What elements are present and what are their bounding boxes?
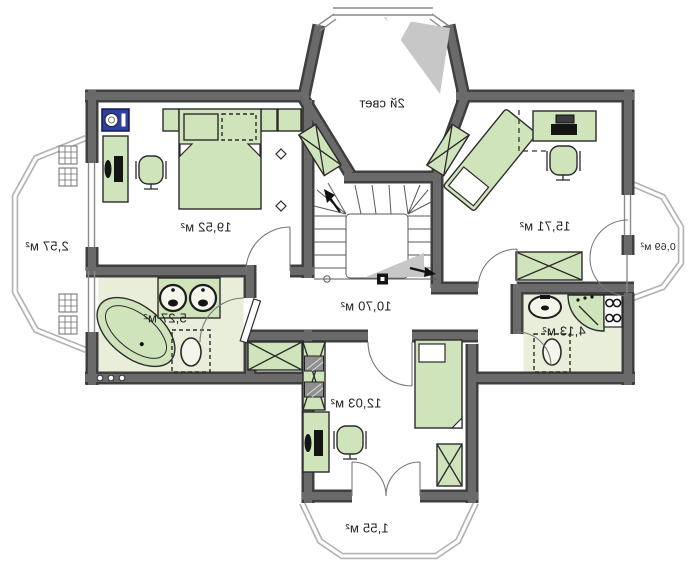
- room-area-label-bottom-room: 12,03 м²: [330, 396, 381, 411]
- planter-box-icon: [59, 294, 77, 312]
- pillow-icon: [419, 344, 445, 362]
- bottom-room-furniture: [303, 340, 462, 486]
- room-area-label-bathroom-right: 4,13 м²: [542, 324, 586, 339]
- office-chair-icon: [136, 156, 166, 189]
- planter-box-icon: [59, 316, 77, 334]
- cabinet-column-icon: [303, 342, 325, 410]
- room-area-label-bedroom-right: 15,71 м²: [519, 219, 570, 234]
- planter-box-icon: [59, 168, 77, 186]
- office-chair-icon: [334, 426, 366, 459]
- room-area-label-bedroom-left: 19,52 м²: [180, 220, 231, 235]
- floor-plan-graphic: [0, 0, 700, 575]
- room-area-label-bathroom-left: 5,27 м²: [143, 311, 187, 326]
- washing-machine-icon: [102, 109, 129, 131]
- cabinet-icon: [278, 109, 301, 131]
- monitor-icon: [114, 156, 123, 182]
- wall-marker: [276, 149, 286, 159]
- pillow-icon: [222, 114, 256, 140]
- wardrobe-icon: [248, 342, 302, 370]
- nightstand-icon: [261, 109, 277, 131]
- bedroom-left-furniture: [102, 109, 301, 211]
- staircase: [314, 183, 437, 285]
- double-door-balcony: [352, 462, 420, 496]
- door-bedroom-right: [478, 249, 517, 288]
- room-area-label-balcony-left: 2,57 м²: [25, 239, 69, 254]
- single-bed-icon: [415, 340, 462, 428]
- monitor-icon: [314, 430, 323, 456]
- wall-marker: [276, 201, 286, 211]
- room-area-label-balcony-right: 0,69 м²: [640, 241, 675, 253]
- floor-plan-canvas: 2й свет 19,52 м² 15,71 м² 10,70 м² 5,27 …: [0, 0, 700, 575]
- nightstand-icon: [163, 109, 179, 131]
- door-bedroom-left: [246, 227, 290, 271]
- room-label-second-light: 2й свет: [359, 96, 405, 111]
- room-area-label-hall: 10,70 м²: [340, 299, 391, 314]
- balcony-bottom-bay: [302, 503, 476, 556]
- door-bottom-room: [368, 342, 412, 386]
- planter-box-icon: [59, 146, 77, 164]
- washer-icon: [604, 295, 622, 327]
- wardrobe-icon: [516, 252, 582, 280]
- room-area-label-balcony-bottom: 1,55 м²: [345, 521, 389, 536]
- office-chair-icon: [547, 146, 580, 180]
- sink-icon: [529, 295, 561, 318]
- computer-icon: [551, 124, 577, 135]
- wardrobe-icon: [437, 444, 462, 486]
- pillow-icon: [184, 114, 218, 140]
